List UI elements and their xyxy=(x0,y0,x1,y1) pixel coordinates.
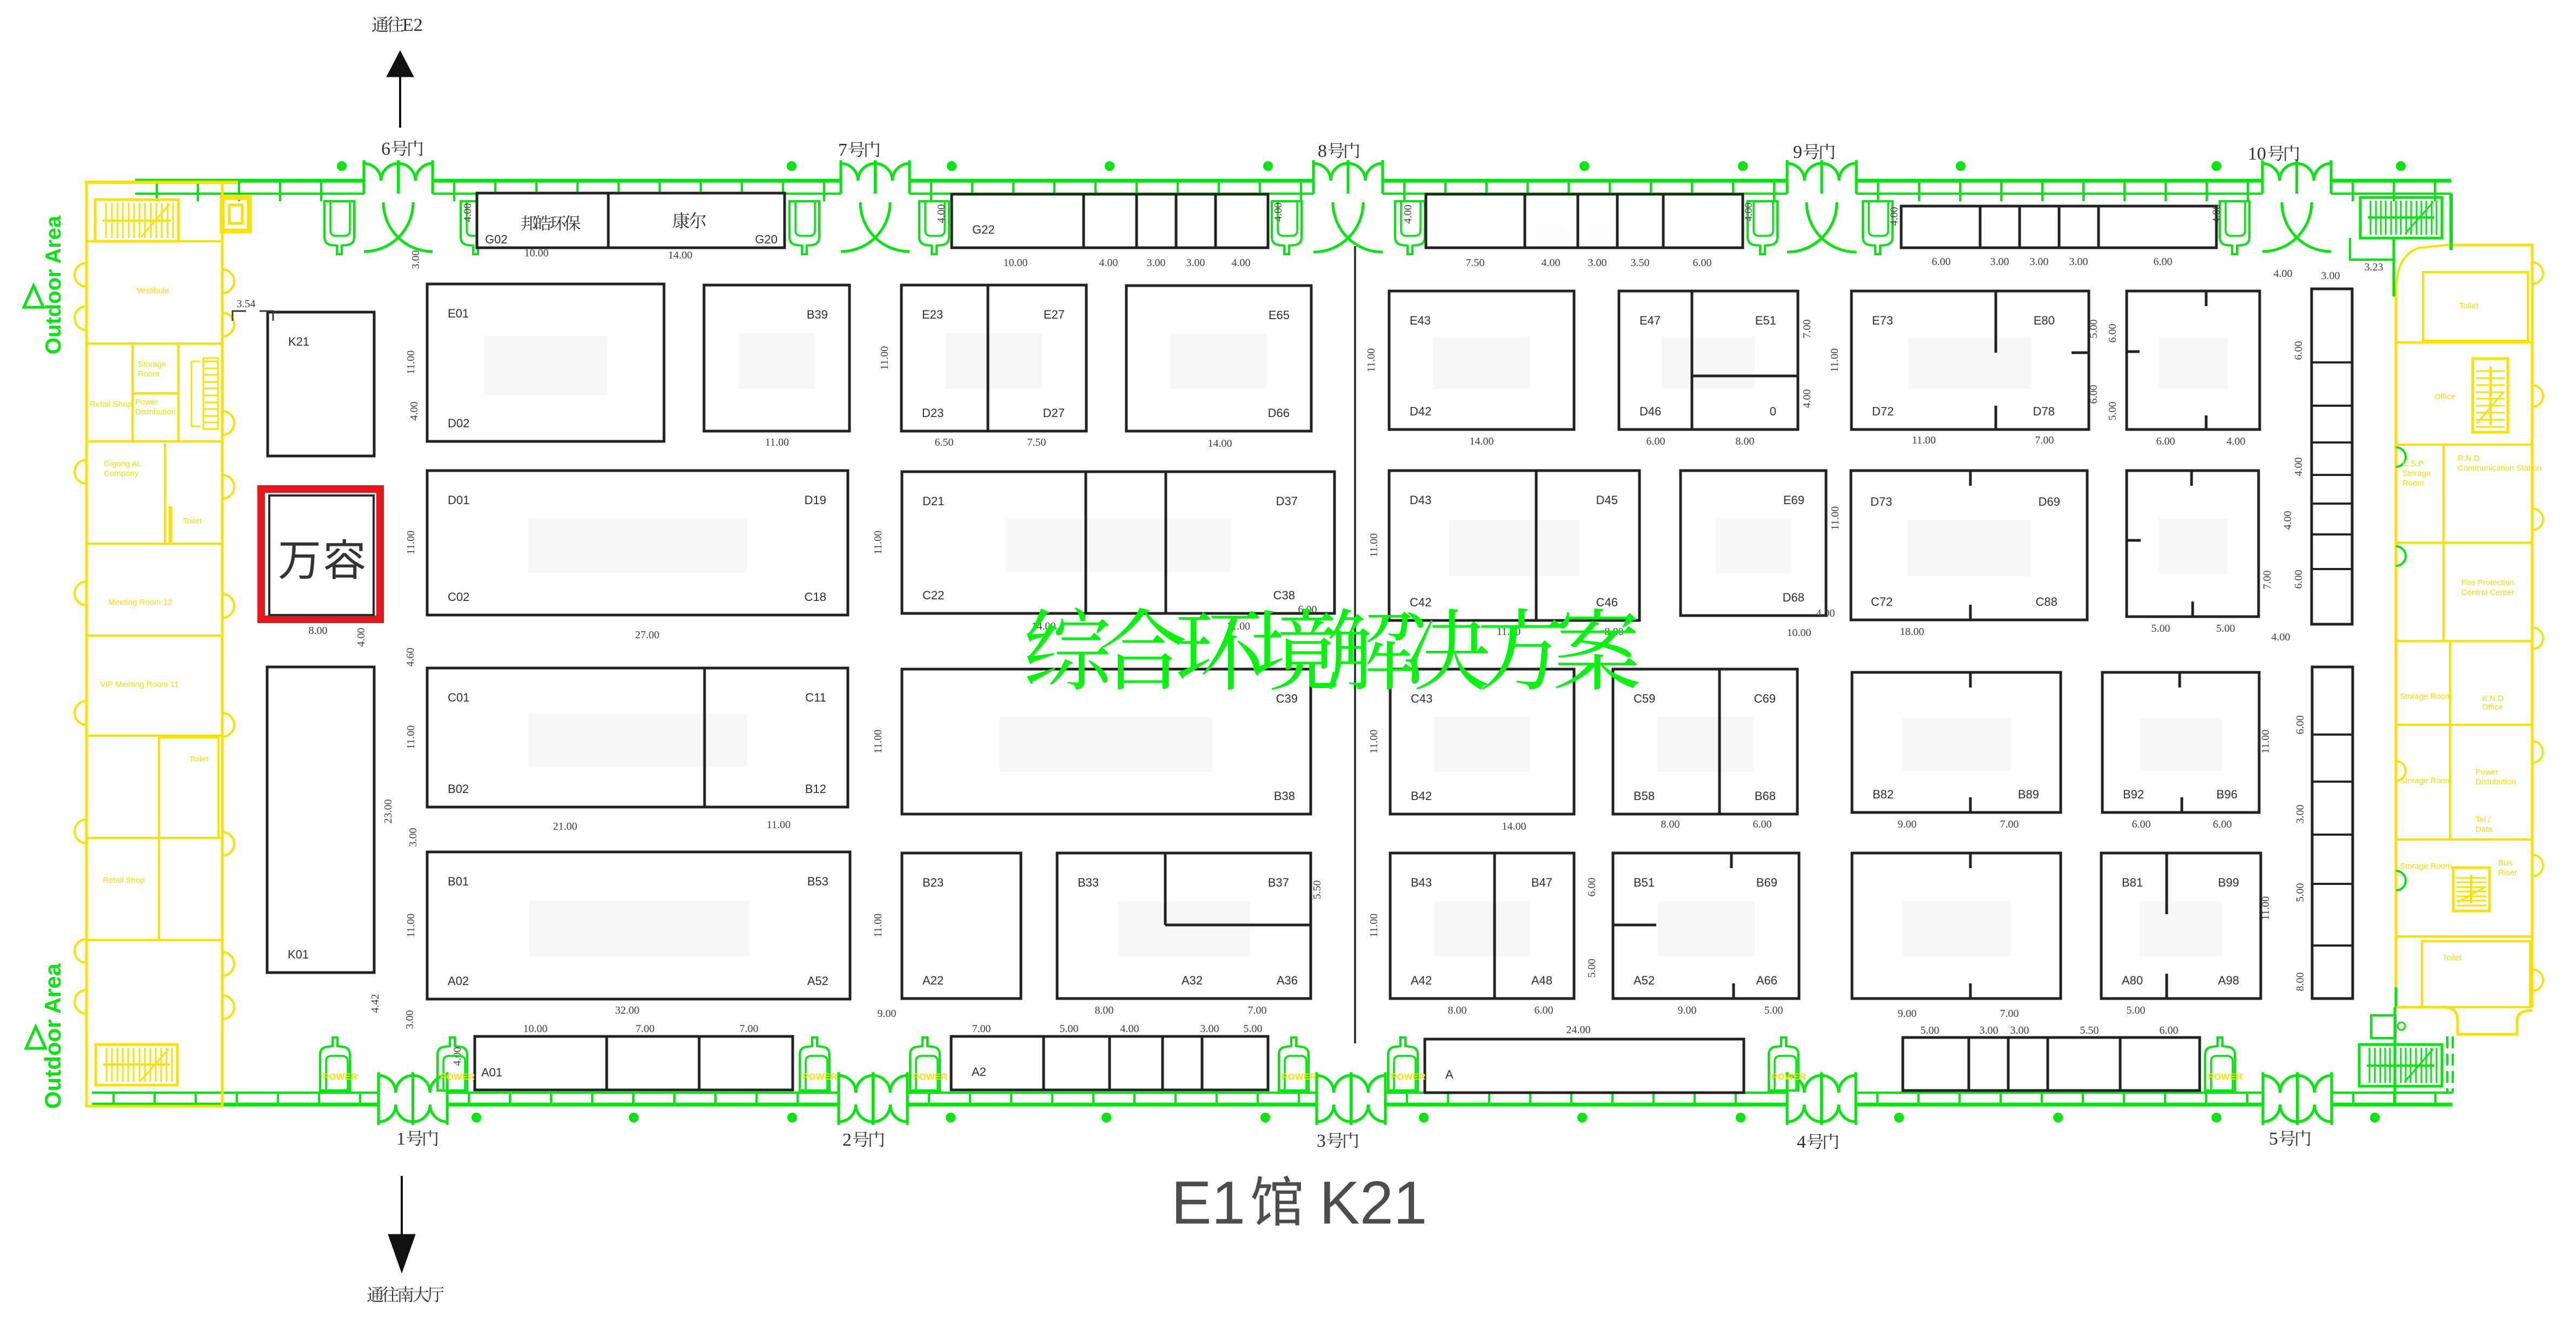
svg-text:4.00: 4.00 xyxy=(935,204,947,223)
svg-text:G02: G02 xyxy=(485,233,508,246)
svg-text:E73: E73 xyxy=(1872,314,1893,327)
svg-text:10: 10 xyxy=(2248,144,2266,164)
svg-text:POWER: POWER xyxy=(1391,1072,1425,1082)
svg-text:8.00: 8.00 xyxy=(309,625,328,637)
svg-text:11.00: 11.00 xyxy=(2260,896,2272,920)
svg-text:10.00: 10.00 xyxy=(1787,627,1811,639)
svg-text:C43: C43 xyxy=(1411,692,1432,705)
svg-text:A48: A48 xyxy=(1531,974,1552,987)
svg-text:10.00: 10.00 xyxy=(1004,257,1028,269)
svg-text:POWER: POWER xyxy=(2208,1072,2242,1082)
svg-text:7.00: 7.00 xyxy=(636,1023,655,1035)
svg-text:21.00: 21.00 xyxy=(553,821,577,832)
svg-text:E65: E65 xyxy=(1269,308,1290,322)
svg-text:8.00: 8.00 xyxy=(1736,435,1755,447)
svg-text:8.00: 8.00 xyxy=(2294,973,2306,991)
svg-text:9.00: 9.00 xyxy=(1678,1004,1697,1016)
svg-text:B82: B82 xyxy=(1873,788,1894,801)
svg-text:Outdoor Area: Outdoor Area xyxy=(42,215,65,354)
svg-text:6: 6 xyxy=(381,139,390,159)
svg-text:C72: C72 xyxy=(1871,595,1893,609)
svg-text:3.00: 3.00 xyxy=(1147,257,1166,269)
svg-text:B89: B89 xyxy=(2018,788,2039,801)
svg-text:C18: C18 xyxy=(805,590,826,604)
svg-text:11.00: 11.00 xyxy=(872,531,884,554)
svg-text:POWER: POWER xyxy=(1282,1072,1316,1082)
svg-text:8.00: 8.00 xyxy=(1095,1004,1114,1016)
svg-text:D23: D23 xyxy=(922,406,944,420)
svg-text:7: 7 xyxy=(838,140,847,160)
svg-text:D42: D42 xyxy=(1410,405,1431,418)
svg-text:G22: G22 xyxy=(972,223,995,236)
svg-text:Office: Office xyxy=(2482,703,2503,712)
svg-text:D46: D46 xyxy=(1639,405,1661,418)
svg-text:3.00: 3.00 xyxy=(2069,256,2088,268)
svg-text:9.00: 9.00 xyxy=(1898,1008,1917,1020)
svg-text:6.00: 6.00 xyxy=(2132,818,2151,830)
svg-text:11.00: 11.00 xyxy=(1829,348,1841,372)
svg-text:B92: B92 xyxy=(2123,788,2144,801)
svg-text:6.00: 6.00 xyxy=(2156,435,2175,447)
svg-text:B01: B01 xyxy=(448,875,469,888)
svg-text:27.00: 27.00 xyxy=(635,629,660,641)
svg-text:POWER: POWER xyxy=(323,1072,357,1082)
svg-text:4.00: 4.00 xyxy=(2210,204,2222,223)
svg-text:11.00: 11.00 xyxy=(405,725,417,749)
svg-text:7.00: 7.00 xyxy=(740,1023,759,1035)
svg-text:C01: C01 xyxy=(448,691,469,704)
svg-text:B47: B47 xyxy=(1531,876,1552,889)
svg-text:B68: B68 xyxy=(1755,789,1776,803)
svg-text:C02: C02 xyxy=(448,590,469,604)
svg-text:11.00: 11.00 xyxy=(879,346,891,370)
svg-text:A98: A98 xyxy=(2218,974,2239,987)
svg-text:3.00: 3.00 xyxy=(1588,257,1607,269)
svg-text:POWER: POWER xyxy=(913,1072,947,1082)
svg-text:A36: A36 xyxy=(1277,974,1298,987)
svg-text:3.00: 3.00 xyxy=(2030,256,2049,268)
svg-text:5.00: 5.00 xyxy=(1586,959,1598,978)
svg-text:5.50: 5.50 xyxy=(1311,881,1323,900)
svg-text:8.00: 8.00 xyxy=(1661,818,1680,830)
svg-text:Power: Power xyxy=(2475,768,2499,777)
svg-text:6.00: 6.00 xyxy=(2213,818,2232,830)
svg-text:A52: A52 xyxy=(807,974,828,988)
svg-text:7.50: 7.50 xyxy=(1466,257,1485,269)
svg-text:D73: D73 xyxy=(1870,495,1892,508)
svg-text:32.00: 32.00 xyxy=(615,1004,640,1016)
svg-text:4.00: 4.00 xyxy=(2274,268,2293,280)
svg-text:E80: E80 xyxy=(2034,314,2055,327)
svg-text:B38: B38 xyxy=(1274,789,1295,803)
svg-text:D78: D78 xyxy=(2033,405,2055,418)
svg-text:D27: D27 xyxy=(1043,406,1065,420)
svg-text:5.00: 5.00 xyxy=(2216,623,2235,634)
svg-text:B96: B96 xyxy=(2216,788,2238,801)
svg-text:5.00: 5.00 xyxy=(1921,1024,1940,1036)
svg-text:11.00: 11.00 xyxy=(872,914,884,937)
svg-text:3.00: 3.00 xyxy=(2321,270,2340,282)
svg-text:VIP Meeting Room 11: VIP Meeting Room 11 xyxy=(100,680,178,689)
svg-text:5.00: 5.00 xyxy=(2127,1004,2146,1016)
svg-text:7.00: 7.00 xyxy=(1801,320,1813,339)
svg-text:4: 4 xyxy=(1797,1132,1806,1152)
svg-text:11.00: 11.00 xyxy=(765,437,789,448)
svg-text:0: 0 xyxy=(1770,405,1776,418)
svg-text:4.00: 4.00 xyxy=(408,402,420,421)
svg-text:D21: D21 xyxy=(922,494,944,508)
svg-text:3.00: 3.00 xyxy=(410,250,422,269)
svg-text:A42: A42 xyxy=(1411,974,1432,987)
svg-text:Distribution: Distribution xyxy=(135,407,176,417)
svg-text:C38: C38 xyxy=(1273,589,1295,602)
svg-text:A02: A02 xyxy=(448,974,469,988)
svg-text:3.23: 3.23 xyxy=(2365,261,2384,273)
svg-text:E43: E43 xyxy=(1410,314,1431,327)
svg-text:4.00: 4.00 xyxy=(2272,631,2290,643)
svg-text:Office: Office xyxy=(2434,392,2455,401)
svg-text:7.00: 7.00 xyxy=(2000,818,2019,830)
svg-text:B23: B23 xyxy=(922,876,944,889)
svg-text:B58: B58 xyxy=(1634,789,1655,803)
svg-text:4.00: 4.00 xyxy=(1743,203,1755,222)
svg-text:4.00: 4.00 xyxy=(2293,458,2305,477)
svg-text:A2: A2 xyxy=(972,1065,986,1079)
svg-text:11.00: 11.00 xyxy=(405,351,417,374)
svg-text:Storage: Storage xyxy=(138,360,167,369)
svg-text:A66: A66 xyxy=(1756,974,1777,987)
svg-text:Toilet: Toilet xyxy=(2459,301,2479,310)
svg-text:6.00: 6.00 xyxy=(2294,716,2306,735)
svg-text:B43: B43 xyxy=(1411,876,1432,889)
svg-text:8: 8 xyxy=(1318,141,1327,161)
svg-text:Retail Shop: Retail Shop xyxy=(103,876,145,885)
svg-text:B12: B12 xyxy=(805,782,826,796)
svg-text:D66: D66 xyxy=(1268,406,1290,420)
svg-text:B37: B37 xyxy=(1268,876,1289,889)
svg-text:K01: K01 xyxy=(288,948,309,961)
svg-text:Room: Room xyxy=(138,369,160,379)
svg-text:POWER: POWER xyxy=(1771,1072,1806,1082)
svg-text:Communication Station: Communication Station xyxy=(2458,464,2541,473)
svg-text:7.00: 7.00 xyxy=(1248,1004,1267,1016)
svg-text:7.00: 7.00 xyxy=(2035,434,2054,446)
svg-text:4.00: 4.00 xyxy=(1120,1023,1139,1035)
svg-text:10.00: 10.00 xyxy=(525,247,549,259)
svg-text:4.00: 4.00 xyxy=(1099,257,1118,269)
svg-text:Retail Shop: Retail Shop xyxy=(90,400,132,409)
svg-text:4.00: 4.00 xyxy=(355,628,367,647)
svg-text:Company: Company xyxy=(104,469,139,478)
svg-text:18.00: 18.00 xyxy=(1900,626,1924,638)
svg-text:11.00: 11.00 xyxy=(1912,434,1936,446)
svg-text:6.00: 6.00 xyxy=(1693,257,1712,269)
svg-text:14.00: 14.00 xyxy=(1470,435,1494,447)
svg-text:Vestibule: Vestibule xyxy=(136,286,169,295)
svg-text:B42: B42 xyxy=(1411,789,1432,803)
svg-text:1: 1 xyxy=(396,1129,406,1149)
svg-text:11.00: 11.00 xyxy=(405,914,417,937)
svg-text:4.00: 4.00 xyxy=(1801,389,1813,408)
svg-text:B53: B53 xyxy=(807,875,828,888)
svg-text:D69: D69 xyxy=(2039,495,2060,508)
svg-text:Power: Power xyxy=(135,398,158,407)
svg-text:3.00: 3.00 xyxy=(407,828,419,847)
svg-text:C46: C46 xyxy=(1596,596,1618,609)
svg-text:9: 9 xyxy=(1793,142,1802,162)
svg-text:3.00: 3.00 xyxy=(1200,1023,1219,1035)
svg-text:Storage Room: Storage Room xyxy=(2400,862,2452,871)
svg-text:Control Center: Control Center xyxy=(2461,588,2514,597)
svg-text:5.00: 5.00 xyxy=(1244,1023,1263,1035)
svg-text:3.54: 3.54 xyxy=(237,298,256,310)
svg-text:11.00: 11.00 xyxy=(1829,506,1841,530)
svg-text:B39: B39 xyxy=(807,308,828,321)
svg-text:K21: K21 xyxy=(1319,1169,1427,1237)
svg-text:4.00: 4.00 xyxy=(462,203,474,222)
svg-text:4.00: 4.00 xyxy=(2227,435,2246,447)
svg-text:Toilet: Toilet xyxy=(2442,953,2462,962)
svg-text:7.50: 7.50 xyxy=(1027,437,1046,448)
svg-text:Storage Room: Storage Room xyxy=(2400,776,2452,785)
svg-text:R.N.D: R.N.D xyxy=(2458,454,2480,463)
svg-text:D19: D19 xyxy=(805,493,826,507)
svg-text:6.00: 6.00 xyxy=(2107,324,2119,343)
svg-text:Fire Protection: Fire Protection xyxy=(2461,578,2514,587)
svg-text:Storage: Storage xyxy=(2402,469,2431,478)
svg-text:14.00: 14.00 xyxy=(668,249,693,261)
svg-text:11.00: 11.00 xyxy=(1368,533,1380,557)
svg-text:E51: E51 xyxy=(1755,314,1776,327)
svg-text:7.00: 7.00 xyxy=(2000,1008,2019,1020)
svg-text:B69: B69 xyxy=(1756,876,1777,889)
svg-text:6.00: 6.00 xyxy=(2088,385,2100,404)
svg-text:Storage Room: Storage Room xyxy=(2400,692,2452,701)
svg-text:6.50: 6.50 xyxy=(935,437,954,448)
svg-text:Bus: Bus xyxy=(2498,858,2512,868)
svg-text:A52: A52 xyxy=(1634,974,1655,987)
svg-text:10.00: 10.00 xyxy=(523,1023,548,1035)
svg-text:11.00: 11.00 xyxy=(1365,348,1377,372)
svg-text:A32: A32 xyxy=(1181,974,1203,987)
svg-text:Toilet: Toilet xyxy=(189,755,209,764)
svg-text:4.00: 4.00 xyxy=(1232,257,1251,269)
svg-text:3.00: 3.00 xyxy=(404,1010,416,1029)
svg-text:5.00: 5.00 xyxy=(2107,402,2119,421)
svg-text:8.00: 8.00 xyxy=(1448,1004,1467,1016)
svg-text:6.00: 6.00 xyxy=(1535,1004,1553,1016)
svg-text:6.00: 6.00 xyxy=(1646,435,1665,447)
svg-text:6.00: 6.00 xyxy=(1753,818,1772,830)
svg-text:Gigong AL: Gigong AL xyxy=(104,459,142,468)
svg-text:E47: E47 xyxy=(1639,314,1661,327)
svg-text:14.00: 14.00 xyxy=(1208,438,1232,450)
svg-text:3: 3 xyxy=(1317,1131,1326,1151)
svg-text:7.00: 7.00 xyxy=(2261,571,2273,590)
svg-text:6.00: 6.00 xyxy=(2293,341,2305,360)
svg-text:E1: E1 xyxy=(1171,1169,1245,1237)
svg-text:A22: A22 xyxy=(922,974,944,987)
svg-text:3.00: 3.00 xyxy=(2010,1024,2029,1036)
svg-text:Data: Data xyxy=(2475,825,2493,834)
svg-text:A: A xyxy=(1445,1068,1453,1081)
svg-text:5.00: 5.00 xyxy=(1764,1004,1783,1016)
svg-text:11.00: 11.00 xyxy=(767,819,791,831)
svg-text:D02: D02 xyxy=(448,417,469,430)
svg-text:4.00: 4.00 xyxy=(1888,207,1900,226)
svg-text:G20: G20 xyxy=(755,233,778,246)
svg-text:Distribution: Distribution xyxy=(2475,777,2516,786)
svg-text:Toilet: Toilet xyxy=(183,517,202,526)
svg-text:3.00: 3.00 xyxy=(1980,1024,1999,1036)
svg-text:Meeting Room 12: Meeting Room 12 xyxy=(108,598,172,607)
svg-text:D45: D45 xyxy=(1596,493,1618,507)
svg-text:11.00: 11.00 xyxy=(872,730,884,753)
svg-text:B02: B02 xyxy=(448,782,469,796)
svg-text:11.00: 11.00 xyxy=(1368,914,1380,937)
svg-text:Tel /: Tel / xyxy=(2475,815,2491,824)
svg-text:C59: C59 xyxy=(1634,692,1655,705)
svg-text:D01: D01 xyxy=(448,493,469,507)
svg-text:2: 2 xyxy=(842,1130,852,1150)
svg-text:A80: A80 xyxy=(2122,974,2143,987)
svg-text:D68: D68 xyxy=(1783,591,1804,604)
svg-text:C42: C42 xyxy=(1410,596,1431,609)
svg-text:E69: E69 xyxy=(1783,493,1804,507)
svg-text:5.00: 5.00 xyxy=(2152,623,2170,634)
svg-text:E23: E23 xyxy=(922,308,943,321)
svg-text:3.50: 3.50 xyxy=(1631,257,1650,269)
svg-text:POWER: POWER xyxy=(440,1072,475,1082)
svg-text:4.00: 4.00 xyxy=(1816,607,1835,619)
svg-text:D37: D37 xyxy=(1276,494,1298,508)
svg-text:Riser: Riser xyxy=(2498,868,2517,877)
svg-text:6.00: 6.00 xyxy=(2293,570,2305,589)
svg-text:D43: D43 xyxy=(1410,493,1431,507)
svg-text:6.00: 6.00 xyxy=(1932,256,1951,268)
svg-text:6.00: 6.00 xyxy=(1586,878,1598,897)
svg-text:3.00: 3.00 xyxy=(2294,805,2306,824)
svg-text:3.00: 3.00 xyxy=(1990,256,2009,268)
svg-text:5.00: 5.00 xyxy=(2294,883,2306,902)
svg-text:11.00: 11.00 xyxy=(2260,730,2272,753)
svg-text:24.00: 24.00 xyxy=(1566,1024,1591,1036)
svg-text:E01: E01 xyxy=(448,307,469,320)
svg-text:POWER: POWER xyxy=(802,1072,837,1082)
svg-text:C11: C11 xyxy=(805,691,826,704)
svg-text:11.00: 11.00 xyxy=(1368,730,1380,753)
svg-text:D72: D72 xyxy=(1872,405,1894,418)
svg-text:C88: C88 xyxy=(2036,595,2057,609)
svg-text:C69: C69 xyxy=(1754,692,1776,705)
svg-text:6.00: 6.00 xyxy=(2160,1024,2179,1036)
svg-text:K21: K21 xyxy=(288,335,309,348)
svg-text:C22: C22 xyxy=(922,589,944,602)
svg-text:C39: C39 xyxy=(1276,692,1298,705)
svg-text:5.50: 5.50 xyxy=(2080,1024,2099,1036)
svg-text:B99: B99 xyxy=(2218,876,2239,889)
svg-text:4.00: 4.00 xyxy=(1402,205,1414,224)
svg-text:A01: A01 xyxy=(481,1066,502,1079)
svg-text:4.00: 4.00 xyxy=(2282,511,2294,530)
svg-text:5.00: 5.00 xyxy=(2088,320,2100,339)
svg-text:E2: E2 xyxy=(402,15,423,35)
svg-text:B51: B51 xyxy=(1634,876,1655,889)
svg-text:B81: B81 xyxy=(2122,876,2143,889)
svg-text:6.00: 6.00 xyxy=(2154,256,2173,268)
svg-text:14.00: 14.00 xyxy=(1502,821,1526,832)
svg-text:Outdoor Area: Outdoor Area xyxy=(40,963,65,1109)
svg-text:C.S.P: C.S.P xyxy=(2402,459,2424,468)
svg-text:3.00: 3.00 xyxy=(1186,257,1205,269)
svg-text:23.00: 23.00 xyxy=(382,799,394,824)
svg-text:E27: E27 xyxy=(1044,308,1065,321)
svg-text:K.N.D: K.N.D xyxy=(2482,694,2504,703)
svg-text:4.00: 4.00 xyxy=(1272,203,1284,222)
svg-text:Room: Room xyxy=(2402,479,2424,488)
svg-text:5: 5 xyxy=(2269,1129,2278,1149)
svg-text:9.00: 9.00 xyxy=(1898,818,1917,830)
svg-text:4.42: 4.42 xyxy=(369,994,381,1013)
svg-text:5.00: 5.00 xyxy=(1060,1023,1079,1035)
svg-text:B33: B33 xyxy=(1078,876,1099,889)
svg-text:9.00: 9.00 xyxy=(878,1008,897,1020)
svg-text:4.00: 4.00 xyxy=(1542,257,1561,269)
svg-text:11.00: 11.00 xyxy=(405,531,417,554)
svg-text:4.60: 4.60 xyxy=(404,648,416,667)
svg-text:7.00: 7.00 xyxy=(972,1023,991,1035)
